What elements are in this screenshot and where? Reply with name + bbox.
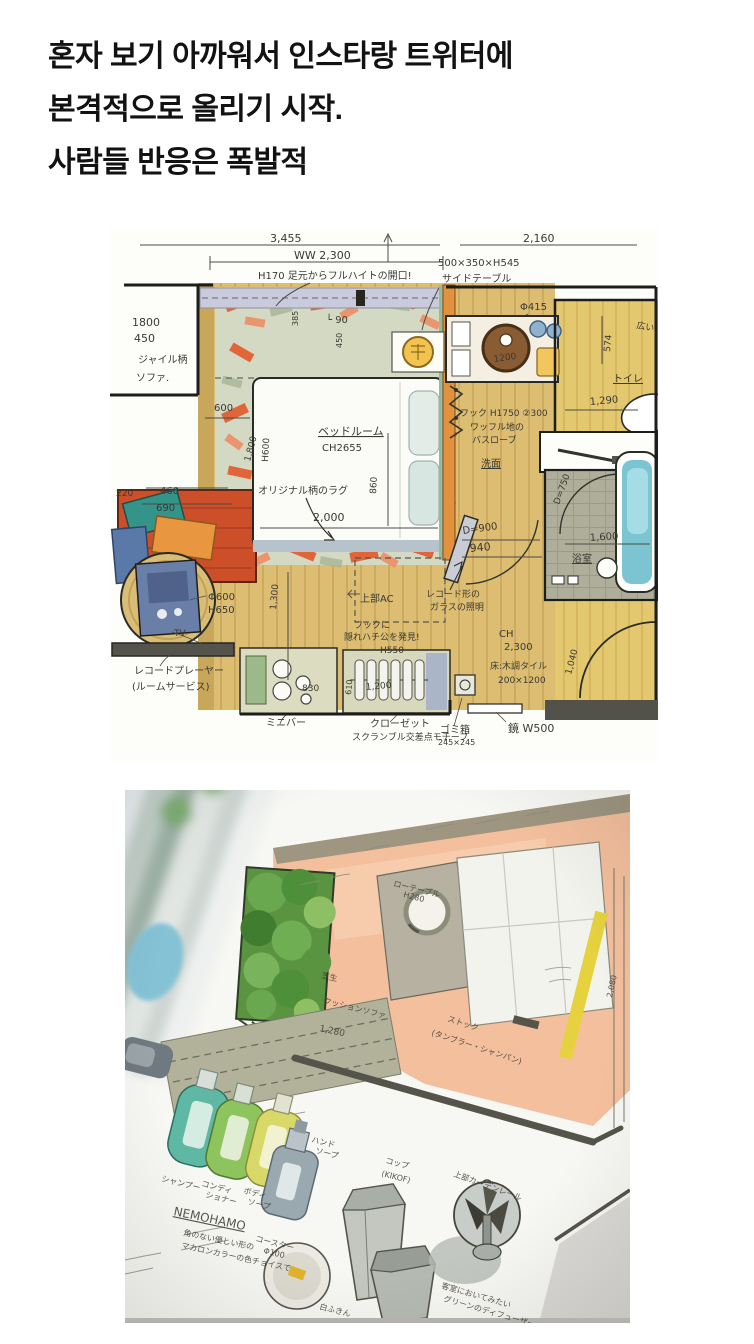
plan-annotation: 2,300 <box>504 642 533 653</box>
plan-annotation: 1800 <box>132 316 160 329</box>
plan-annotation: TV <box>173 629 186 639</box>
plan-annotation: 浴室 <box>572 552 592 565</box>
plan-annotation: 1,600 <box>589 531 618 544</box>
floorplan-photo-terrace[interactable]: ローテーブルH280芝生クッションソファ1,280ストック(タンブラー・シャンパ… <box>125 790 630 1323</box>
plan-annotation: H600 <box>261 437 272 462</box>
plan-annotation: ミニバー <box>266 717 306 729</box>
bathroom <box>540 432 658 600</box>
plan-annotation: 3,455 <box>270 232 302 245</box>
plan-annotation: ゴミ箱 <box>440 723 470 736</box>
plan-annotation: Φ415 <box>520 302 547 313</box>
plan-annotation: 830 <box>302 684 319 694</box>
plan-annotation: WW 2,300 <box>294 249 351 262</box>
post-caption-line-2: 본격적으로 올리기 시작. <box>48 83 708 136</box>
plan-annotation: (ルームサービス) <box>132 681 210 693</box>
plan-annotation: トイレ <box>613 374 643 385</box>
plan-annotation: H550 <box>380 646 404 656</box>
post-caption: 혼자 보기 아까워서 인스타랑 트위터에 본격적으로 올리기 시작. 사람들 반… <box>48 30 708 189</box>
plan-annotation: H170 足元からフルハイトの開口! <box>258 270 412 282</box>
plan-annotation: レコードプレーヤー <box>134 665 224 677</box>
plan-annotation: 385 <box>291 311 300 326</box>
plan-annotation: 460 <box>160 486 179 497</box>
plan-annotation: 450 <box>134 332 155 345</box>
plan-annotation: 上部AC <box>360 592 394 605</box>
plan-annotation: 洗面 <box>481 458 501 470</box>
plan-annotation: クローゼット <box>370 718 430 730</box>
photo-vignette <box>125 790 630 1323</box>
plan-annotation: 200×1200 <box>498 676 546 686</box>
floorplan-image-guestroom[interactable]: 3,4552,160WW 2,300500×350×H545サイドテーブルH17… <box>110 228 658 761</box>
plan-annotation: 鏡 W500 <box>508 721 554 735</box>
closet <box>343 650 450 722</box>
plan-annotation: 500×350×H545 <box>438 258 520 269</box>
plan-annotation: ソファ. <box>136 373 169 384</box>
photo-bottom-edge <box>125 1318 630 1323</box>
plan-annotation: ワッフル地の <box>470 421 524 433</box>
plan-annotation: 220 <box>116 489 133 499</box>
photo-plan-svg: ローテーブルH280芝生クッションソファ1,280ストック(タンブラー・シャンパ… <box>125 790 630 1323</box>
plan-annotation: └ 90 <box>326 313 348 326</box>
plan-annotation: CH <box>499 629 514 640</box>
plan-annotation: サイドテーブル <box>442 272 511 285</box>
post-caption-line-1: 혼자 보기 아까워서 인스타랑 트위터에 <box>48 30 708 83</box>
plan-annotation: ジャイル柄 <box>138 353 188 366</box>
plan-annotation: ベッドルーム <box>318 425 384 438</box>
side-table-lamp <box>392 332 444 372</box>
floorplan-svg: 3,4552,160WW 2,300500×350×H545サイドテーブルH17… <box>110 228 658 761</box>
plan-annotation: 450 <box>335 333 344 348</box>
window-band <box>200 288 450 308</box>
plan-annotation: 隠れハチ公を発見! <box>344 631 420 643</box>
post-caption-line-3: 사람들 반응은 폭발적 <box>48 136 708 189</box>
plan-annotation: 860 <box>369 476 380 494</box>
plan-annotation: H650 <box>208 605 235 616</box>
plan-annotation: 245×245 <box>438 738 475 747</box>
plan-annotation: フック H1750 ②300 <box>460 408 548 419</box>
plan-annotation: Φ600 <box>208 592 235 603</box>
plan-annotation: バスローブ <box>472 434 516 446</box>
record-player-rug <box>121 553 215 647</box>
plan-annotation: 床:木調タイル <box>490 660 547 672</box>
plan-annotation: 940 <box>469 540 491 555</box>
plan-annotation: レコード形の <box>426 588 480 600</box>
plan-annotation: フックに <box>354 620 390 631</box>
plan-annotation: 600 <box>214 403 233 414</box>
plan-annotation: 610 <box>344 679 354 695</box>
plan-annotation: オリジナル柄のラグ <box>258 484 348 497</box>
plan-annotation: 574 <box>603 334 614 352</box>
kitchenette-counter <box>446 316 561 382</box>
plan-annotation: 2,160 <box>523 232 555 245</box>
plan-annotation: CH2655 <box>322 443 362 454</box>
plan-annotation: 2,000 <box>313 511 345 524</box>
plan-annotation: ガラスの照明 <box>430 602 484 613</box>
plan-annotation: 690 <box>156 503 175 514</box>
